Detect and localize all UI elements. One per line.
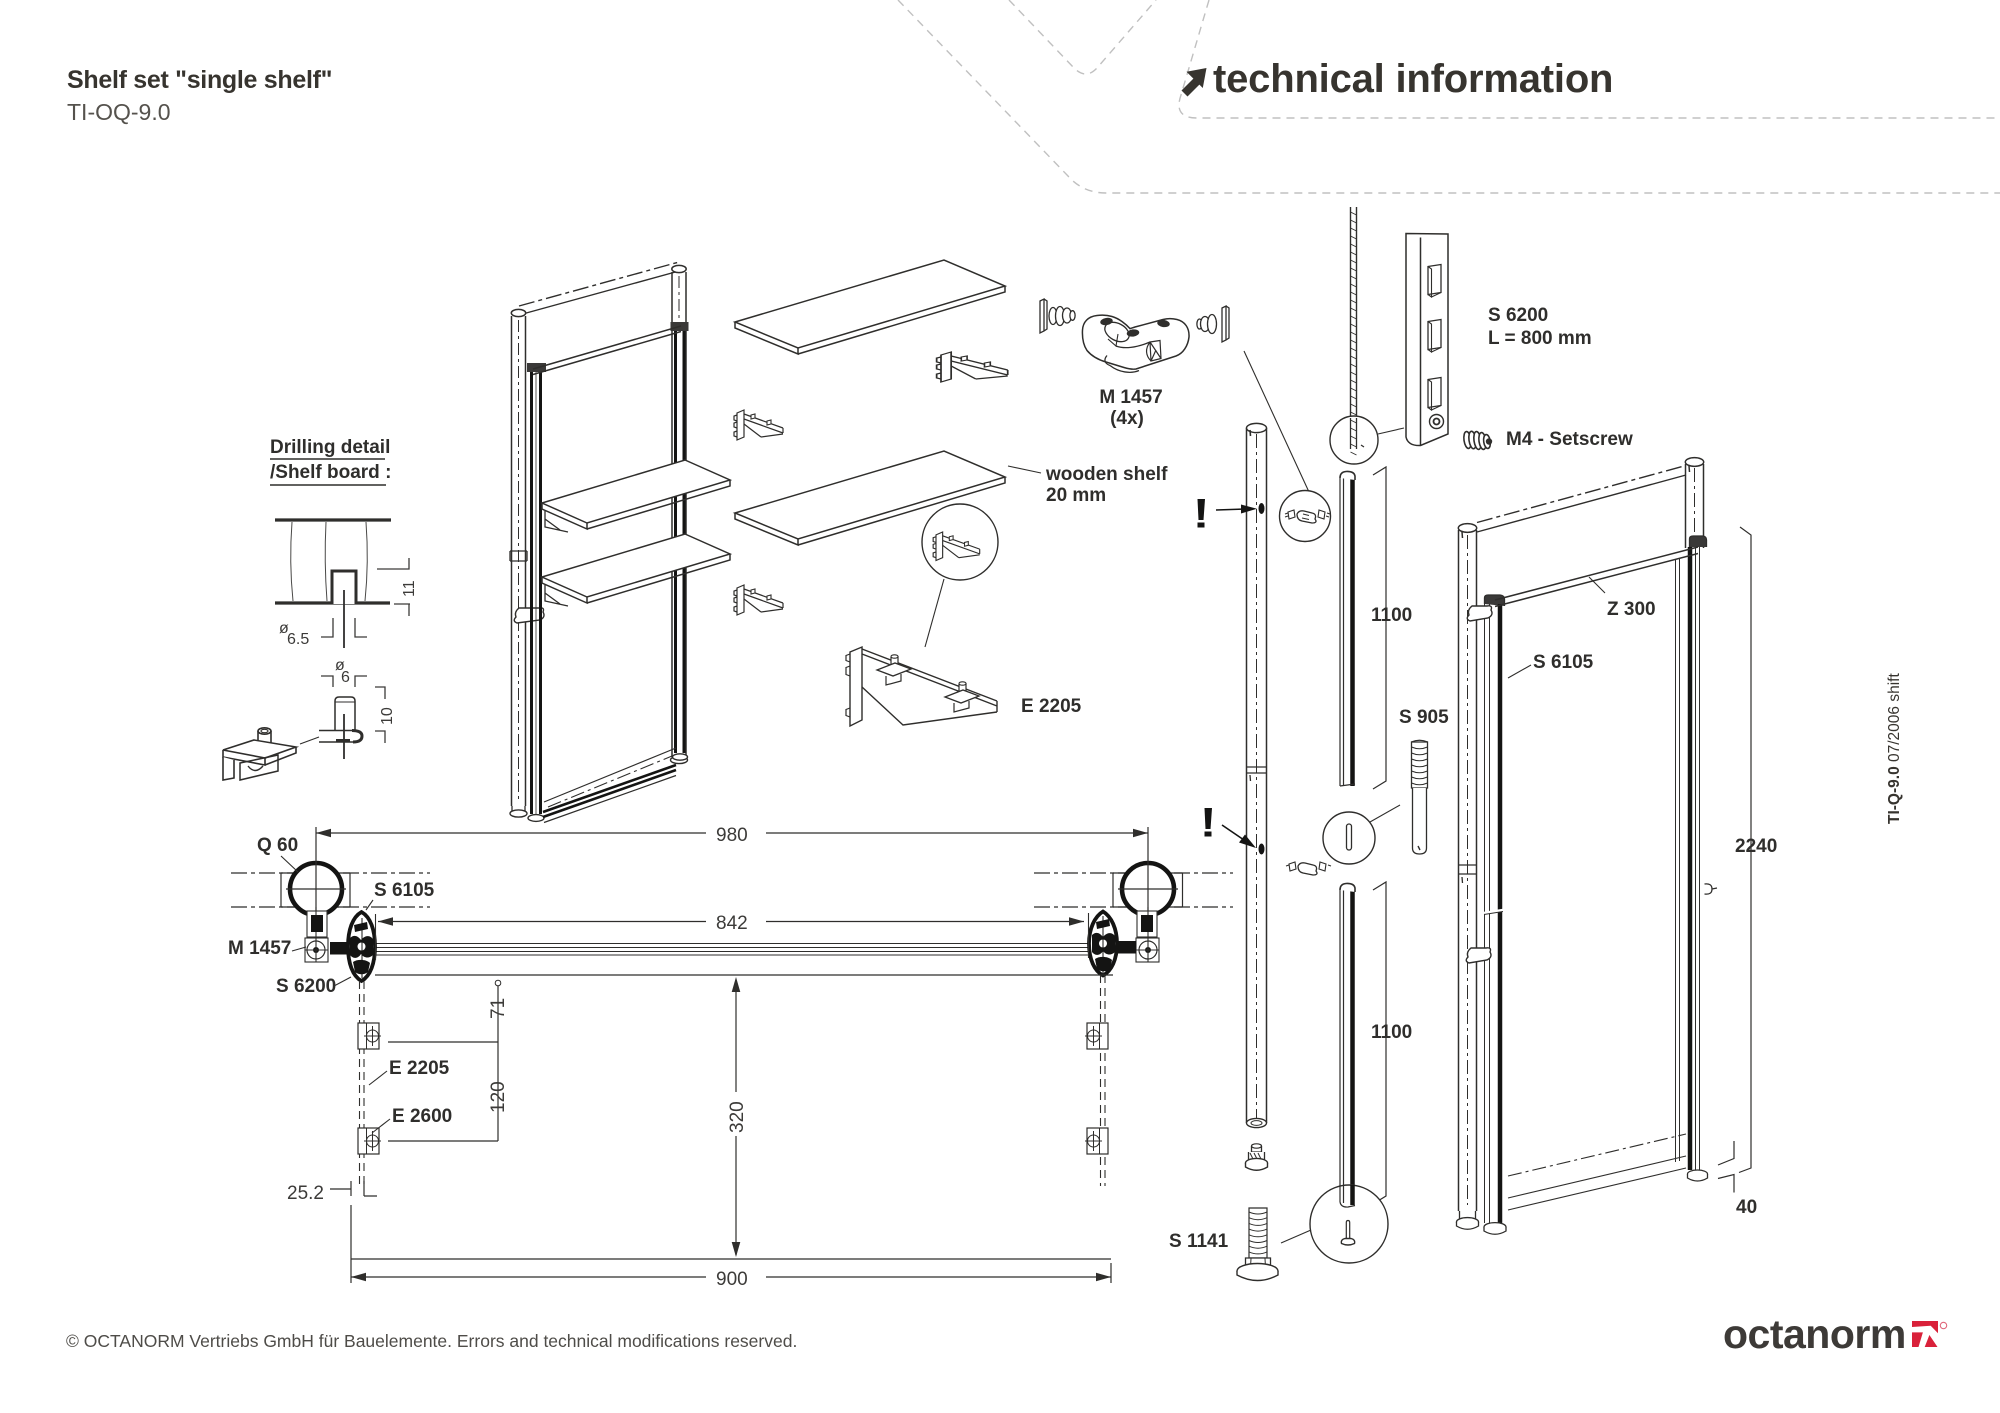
svg-text:1100: 1100 [1371,605,1412,626]
svg-text:6.5: 6.5 [287,631,309,648]
svg-text:6: 6 [341,669,350,686]
svg-text:technical information: technical information [1213,57,1613,101]
svg-text:2240: 2240 [1735,836,1777,857]
svg-text:TI-OQ-9.0: TI-OQ-9.0 [67,99,171,125]
svg-text:E 2205: E 2205 [1021,696,1082,717]
svg-text:S 6200: S 6200 [1488,305,1548,326]
svg-text:S 6200: S 6200 [276,976,336,997]
svg-text:10: 10 [379,707,396,725]
svg-text:octanorm: octanorm [1723,1311,1906,1357]
svg-text:(4x): (4x) [1110,408,1144,429]
svg-text:980: 980 [716,825,748,846]
svg-text:M 1457: M 1457 [1099,387,1162,408]
svg-text:L = 800 mm: L = 800 mm [1488,328,1592,349]
svg-text:Z 300: Z 300 [1607,599,1656,620]
svg-text:S 6105: S 6105 [1533,652,1594,673]
svg-text:M4 - Setscrew: M4 - Setscrew [1506,429,1633,450]
svg-text:Shelf set "single shelf": Shelf set "single shelf" [67,66,332,94]
svg-text:320: 320 [727,1101,748,1133]
svg-text:11: 11 [401,580,418,597]
svg-text:20 mm: 20 mm [1046,485,1106,506]
svg-text:Q 60: Q 60 [257,835,298,856]
svg-text:1100: 1100 [1371,1022,1412,1043]
svg-text:E 2205: E 2205 [389,1058,450,1079]
svg-text:M 1457: M 1457 [228,938,291,959]
svg-text:Drilling detail: Drilling detail [270,437,390,458]
svg-text:E 2600: E 2600 [392,1106,452,1127]
svg-text:900: 900 [716,1269,748,1290]
svg-text:wooden shelf: wooden shelf [1045,464,1168,485]
svg-text:40: 40 [1736,1197,1757,1218]
svg-text:S 1141: S 1141 [1169,1231,1229,1252]
svg-text:/Shelf board :: /Shelf board : [270,462,391,483]
svg-text:842: 842 [716,913,748,934]
svg-text:© OCTANORM Vertriebs GmbH für: © OCTANORM Vertriebs GmbH für Bauelement… [66,1331,797,1351]
svg-text:120: 120 [488,1081,509,1113]
svg-text:S 6105: S 6105 [374,880,435,901]
svg-text:S 905: S 905 [1399,707,1449,728]
svg-text:71: 71 [488,998,509,1019]
svg-text:TI-Q-9.0 07/2006 shift: TI-Q-9.0 07/2006 shift [1886,673,1903,824]
svg-text:25.2: 25.2 [287,1183,324,1204]
